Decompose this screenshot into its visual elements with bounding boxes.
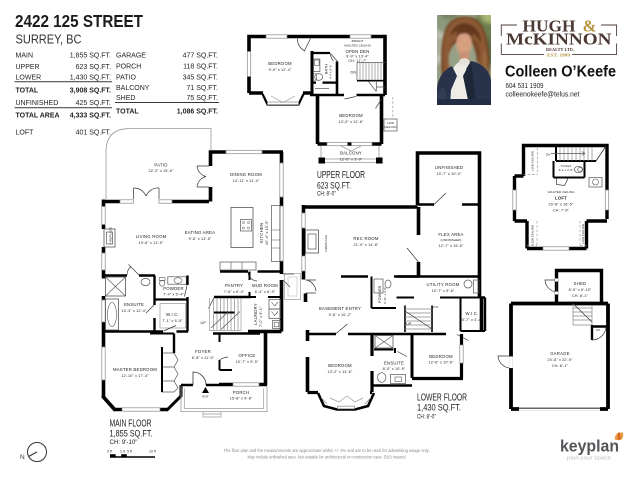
svg-text:2.5: 2.5 xyxy=(120,450,125,454)
svg-text:CEILING: CEILING xyxy=(384,125,397,129)
svg-text:OFFICE: OFFICE xyxy=(239,353,256,358)
svg-text:UP: UP xyxy=(596,328,600,332)
svg-text:PORCH: PORCH xyxy=(233,390,250,395)
svg-text:plan your space: plan your space xyxy=(567,456,611,462)
svg-text:71 SQ.FT.: 71 SQ.FT. xyxy=(186,85,218,92)
svg-text:5 ft: 5 ft xyxy=(127,450,132,454)
svg-text:0 ft: 0 ft xyxy=(107,450,112,454)
svg-text:1,430 SQ.FT.: 1,430 SQ.FT. xyxy=(70,75,111,82)
svg-text:PATIO: PATIO xyxy=(154,163,168,168)
svg-text:UNFINISHED: UNFINISHED xyxy=(435,165,463,170)
svg-text:10 ft: 10 ft xyxy=(149,450,156,454)
svg-text:BRIGHT: BRIGHT xyxy=(352,39,364,43)
svg-text:(UNFINISHED): (UNFINISHED) xyxy=(441,238,462,242)
svg-text:10'-7" x 5'-6": 10'-7" x 5'-6" xyxy=(432,289,455,293)
svg-text:477 SQ.FT.: 477 SQ.FT. xyxy=(183,53,218,60)
svg-text:7'-1" x 6'-5": 7'-1" x 6'-5" xyxy=(162,319,183,323)
svg-text:623 SQ.FT.: 623 SQ.FT. xyxy=(76,64,111,71)
svg-text:7'-6" x 6'-4": 7'-6" x 6'-4" xyxy=(224,290,245,294)
svg-text:N: N xyxy=(20,454,25,461)
svg-text:SHED: SHED xyxy=(574,281,587,286)
svg-text:BEDROOM: BEDROOM xyxy=(429,354,453,359)
svg-text:13'-2" x 14'-6": 13'-2" x 14'-6" xyxy=(328,370,353,374)
svg-text:LOFT: LOFT xyxy=(16,130,35,137)
svg-text:BALCONY: BALCONY xyxy=(340,151,362,156)
svg-text:POWDER: POWDER xyxy=(163,286,184,291)
svg-text:118 SQ.FT.: 118 SQ.FT. xyxy=(183,64,218,71)
svg-text:9'-6" x 13'-5": 9'-6" x 13'-5" xyxy=(189,237,212,241)
svg-text:13'-0" x 12'-6": 13'-0" x 12'-6" xyxy=(339,120,364,124)
svg-text:623 SQ.FT.: 623 SQ.FT. xyxy=(317,181,351,191)
svg-text:BEDROOM: BEDROOM xyxy=(328,363,352,368)
svg-text:FOYER: FOYER xyxy=(195,349,211,354)
svg-text:MAIN: MAIN xyxy=(16,53,34,60)
svg-text:TOTAL: TOTAL xyxy=(116,109,139,116)
svg-text:20'-8" x 16'-5": 20'-8" x 16'-5" xyxy=(549,203,574,207)
svg-text:DN: DN xyxy=(546,153,550,157)
svg-text:6'-8" x 11'-9": 6'-8" x 11'-9" xyxy=(192,356,215,360)
svg-text:BALCONY: BALCONY xyxy=(116,85,150,92)
svg-text:4,333 SQ.FT.: 4,333 SQ.FT. xyxy=(70,113,111,120)
svg-text:LIVING ROOM: LIVING ROOM xyxy=(136,234,167,239)
svg-text:LOW CEILING: LOW CEILING xyxy=(581,223,585,244)
svg-text:14'-11" x 11'-4": 14'-11" x 11'-4" xyxy=(233,179,260,183)
svg-text:75 SQ.FT.: 75 SQ.FT. xyxy=(186,95,218,102)
svg-text:VAULTED CEILING: VAULTED CEILING xyxy=(548,190,576,194)
svg-text:LAUNDRY: LAUNDRY xyxy=(253,303,258,325)
svg-text:DINING ROOM: DINING ROOM xyxy=(230,172,262,177)
svg-text:ENT: ENT xyxy=(202,395,208,399)
svg-text:3,908 SQ.FT.: 3,908 SQ.FT. xyxy=(70,88,111,95)
svg-text:CH: 8'-0": CH: 8'-0" xyxy=(417,414,436,421)
svg-text:345 SQ.FT.: 345 SQ.FT. xyxy=(183,75,218,82)
svg-text:2422 125 STREET: 2422 125 STREET xyxy=(15,11,143,31)
svg-text:keyplan: keyplan xyxy=(560,437,619,456)
svg-text:LOW CEILING: LOW CEILING xyxy=(531,150,535,171)
svg-text:EST. 1909: EST. 1909 xyxy=(547,53,570,58)
svg-text:FIREPLACE: FIREPLACE xyxy=(324,235,328,252)
svg-text:W.I.C.: W.I.C. xyxy=(466,311,479,316)
svg-text:MASTER BEDROOM: MASTER BEDROOM xyxy=(113,367,157,372)
svg-text:The floor plan and the measure: The floor plan and the measurements are … xyxy=(224,448,430,453)
svg-text:W.I.C.: W.I.C. xyxy=(166,312,179,317)
svg-text:12'-7" x 15'-6": 12'-7" x 15'-6" xyxy=(439,244,464,248)
svg-text:CH: 9'-10": CH: 9'-10" xyxy=(110,439,139,446)
svg-text:ENSUITE: ENSUITE xyxy=(124,302,144,307)
svg-text:7'-0" x 9'-1": 7'-0" x 9'-1" xyxy=(259,306,263,327)
svg-text:UP: UP xyxy=(406,322,412,326)
svg-text:CH: 8'-1": CH: 8'-1" xyxy=(552,364,569,368)
svg-text:PORCH: PORCH xyxy=(116,64,141,71)
svg-text:FLEX AREA: FLEX AREA xyxy=(438,232,463,237)
svg-text:5'-7" x 4'-4": 5'-7" x 4'-4" xyxy=(462,318,483,322)
svg-text:10'-3" x 12'-4": 10'-3" x 12'-4" xyxy=(122,309,147,313)
svg-text:BEDROOM: BEDROOM xyxy=(268,61,292,66)
svg-text:8'-0" x 10'-9": 8'-0" x 10'-9" xyxy=(383,367,406,371)
svg-text:ENSUITE: ENSUITE xyxy=(384,361,404,366)
svg-text:McKINNON: McKINNON xyxy=(506,30,612,49)
svg-text:TOTAL AREA: TOTAL AREA xyxy=(16,113,60,120)
svg-text:LOWER: LOWER xyxy=(16,75,42,82)
svg-text:CH: 7'-9": CH: 7'-9" xyxy=(553,209,570,213)
svg-text:EATING AREA: EATING AREA xyxy=(185,230,216,235)
svg-text:SURREY, BC: SURREY, BC xyxy=(16,33,82,47)
svg-text:PATIO: PATIO xyxy=(116,75,137,82)
svg-text:22'-2" x 15'-6": 22'-2" x 15'-6" xyxy=(149,169,174,173)
svg-text:9'-6" x 10'-2": 9'-6" x 10'-2" xyxy=(329,313,352,317)
svg-text:PANTRY: PANTRY xyxy=(225,283,243,288)
svg-text:1,855 SQ.FT.: 1,855 SQ.FT. xyxy=(70,53,111,60)
svg-text:15'-8" x 9'-8": 15'-8" x 9'-8" xyxy=(230,397,253,401)
svg-text:Colleen O’Keefe: Colleen O’Keefe xyxy=(505,64,616,81)
svg-text:CH: 8'-1": CH: 8'-1" xyxy=(572,294,589,298)
svg-text:FIREPLACE: FIREPLACE xyxy=(109,227,113,244)
svg-text:TOTAL: TOTAL xyxy=(16,88,39,95)
svg-text:12'-10" x 17'-4": 12'-10" x 17'-4" xyxy=(121,374,149,378)
svg-text:8'-9" x 6'-10": 8'-9" x 6'-10" xyxy=(569,288,592,292)
svg-text:colleenokeefe@telus.net: colleenokeefe@telus.net xyxy=(506,90,581,99)
svg-text:9'-9" x 12'-4": 9'-9" x 12'-4" xyxy=(269,68,292,72)
svg-text:LOFT: LOFT xyxy=(555,196,567,201)
svg-text:VAULTED CEILING: VAULTED CEILING xyxy=(344,44,372,48)
svg-text:12'-6" x 10'-6": 12'-6" x 10'-6" xyxy=(429,361,454,365)
svg-text:10'-7" x 10'-0": 10'-7" x 10'-0" xyxy=(437,172,462,176)
svg-text:6'-1 x 2'-6": 6'-1 x 2'-6" xyxy=(559,168,574,172)
svg-text:UNFINISHED: UNFINISHED xyxy=(16,100,59,107)
svg-text:POWDER: POWDER xyxy=(378,285,382,303)
svg-text:UP: UP xyxy=(201,321,207,325)
svg-text:UTILITY ROOM: UTILITY ROOM xyxy=(427,282,460,287)
svg-text:UPPER: UPPER xyxy=(16,64,40,71)
svg-text:DN: DN xyxy=(351,71,357,75)
svg-text:10'-4" x 15'-9": 10'-4" x 15'-9" xyxy=(265,220,269,245)
svg-text:6'-11" x 3'-0": 6'-11" x 3'-0" xyxy=(383,287,387,304)
svg-text:1,855 SQ.FT.: 1,855 SQ.FT. xyxy=(110,429,153,439)
svg-text:BASEMENT ENTRY: BASEMENT ENTRY xyxy=(319,306,361,311)
svg-text:401 SQ.FT.: 401 SQ.FT. xyxy=(76,130,111,137)
svg-text:MUD ROOM: MUD ROOM xyxy=(252,283,278,288)
svg-text:GARAGE: GARAGE xyxy=(550,351,570,356)
svg-text:KITCHEN: KITCHEN xyxy=(259,223,264,243)
svg-text:REC ROOM: REC ROOM xyxy=(353,236,378,241)
svg-text:BEDROOM: BEDROOM xyxy=(339,113,363,118)
svg-text:May include unfinished area. N: May include unfinished area. Not suitabl… xyxy=(248,455,407,460)
svg-text:GARAGE: GARAGE xyxy=(116,53,146,60)
svg-text:REALTY LTD.: REALTY LTD. xyxy=(546,47,574,52)
svg-text:21'-0" x 14'-8": 21'-0" x 14'-8" xyxy=(354,243,379,247)
svg-text:1,430 SQ.FT.: 1,430 SQ.FT. xyxy=(417,403,461,413)
svg-text:OPEN DEN: OPEN DEN xyxy=(345,49,369,54)
svg-text:SHED: SHED xyxy=(116,95,135,102)
svg-text:6'-4" x 6'-9": 6'-4" x 6'-9" xyxy=(255,290,276,294)
svg-text:7'-4" x 5'-4": 7'-4" x 5'-4" xyxy=(163,293,184,297)
svg-text:10'-7" x 9'-5": 10'-7" x 9'-5" xyxy=(236,360,259,364)
svg-text:4'-4 x 9'-8: 4'-4 x 9'-8 xyxy=(329,65,333,79)
svg-text:CH: 8'-0": CH: 8'-0" xyxy=(317,191,336,198)
svg-text:LOW CEILING: LOW CEILING xyxy=(531,224,535,245)
svg-text:1,086 SQ.FT.: 1,086 SQ.FT. xyxy=(177,109,218,116)
svg-text:STO: STO xyxy=(432,305,439,309)
svg-text:425 SQ.FT.: 425 SQ.FT. xyxy=(76,100,111,107)
svg-text:19'-6" x 13'-5": 19'-6" x 13'-5" xyxy=(139,241,164,245)
svg-text:20'-8" x 22'-9": 20'-8" x 22'-9" xyxy=(548,358,573,362)
svg-text:UPPER FLOOR: UPPER FLOOR xyxy=(317,170,365,181)
svg-text:12'-6" x 3'-9": 12'-6" x 3'-9" xyxy=(340,158,363,162)
